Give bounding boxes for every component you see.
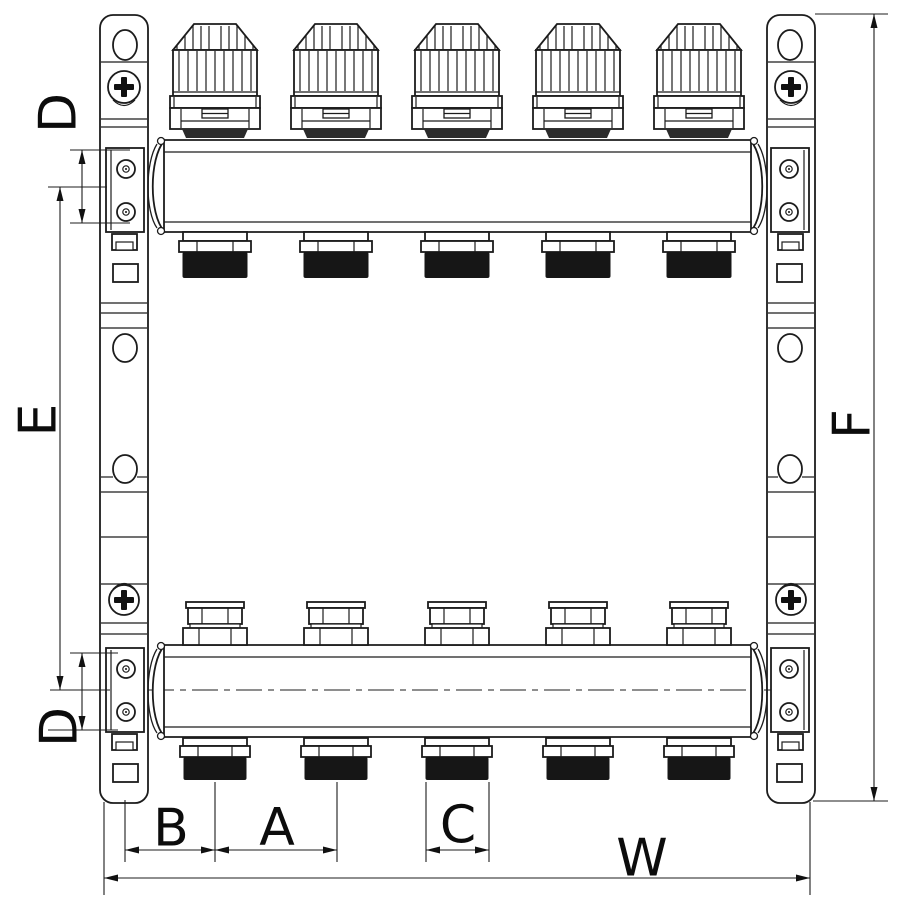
top-outlet-1 — [179, 232, 251, 278]
dim-label-e: E — [9, 404, 69, 437]
valve-head-3 — [412, 24, 502, 138]
valve-head-2 — [291, 24, 381, 138]
valve-head-4 — [533, 24, 623, 138]
top-bar-left-cap — [148, 138, 165, 235]
bottom-outlet-5 — [664, 738, 734, 780]
diagram-canvas: D E D F B A C W — [0, 0, 900, 900]
dim-label-d-bottom: D — [30, 707, 90, 747]
flow-fitting-3 — [425, 602, 489, 645]
bottom-outlet-1 — [180, 738, 250, 780]
dim-label-b: B — [153, 799, 189, 859]
manifold-dimension-diagram: D E D F B A C W — [0, 0, 900, 900]
top-outlet-4 — [542, 232, 614, 278]
dim-label-c: C — [440, 796, 476, 856]
flow-fitting-4 — [546, 602, 610, 645]
dim-label-f: F — [823, 409, 883, 439]
top-outlet-5 — [663, 232, 735, 278]
top-outlet-2 — [300, 232, 372, 278]
top-outlet-3 — [421, 232, 493, 278]
dim-label-w: W — [616, 829, 667, 889]
bottom-manifold-bar — [148, 645, 782, 737]
top-manifold-bar — [160, 140, 755, 232]
bottom-bar-left-cap — [148, 643, 165, 740]
dim-label-a: A — [259, 798, 295, 858]
bottom-outlet-3 — [422, 738, 492, 780]
valve-head-5 — [654, 24, 744, 138]
bottom-outlet-4 — [543, 738, 613, 780]
flow-fitting-1 — [183, 602, 247, 645]
valve-head-1 — [170, 24, 260, 138]
bottom-bar-right-cap — [751, 643, 768, 740]
bottom-outlet-2 — [301, 738, 371, 780]
flow-fitting-2 — [304, 602, 368, 645]
top-bar-right-cap — [751, 138, 768, 235]
flow-fitting-5 — [667, 602, 731, 645]
dim-f — [813, 14, 888, 801]
dim-label-d-top: D — [29, 93, 89, 133]
